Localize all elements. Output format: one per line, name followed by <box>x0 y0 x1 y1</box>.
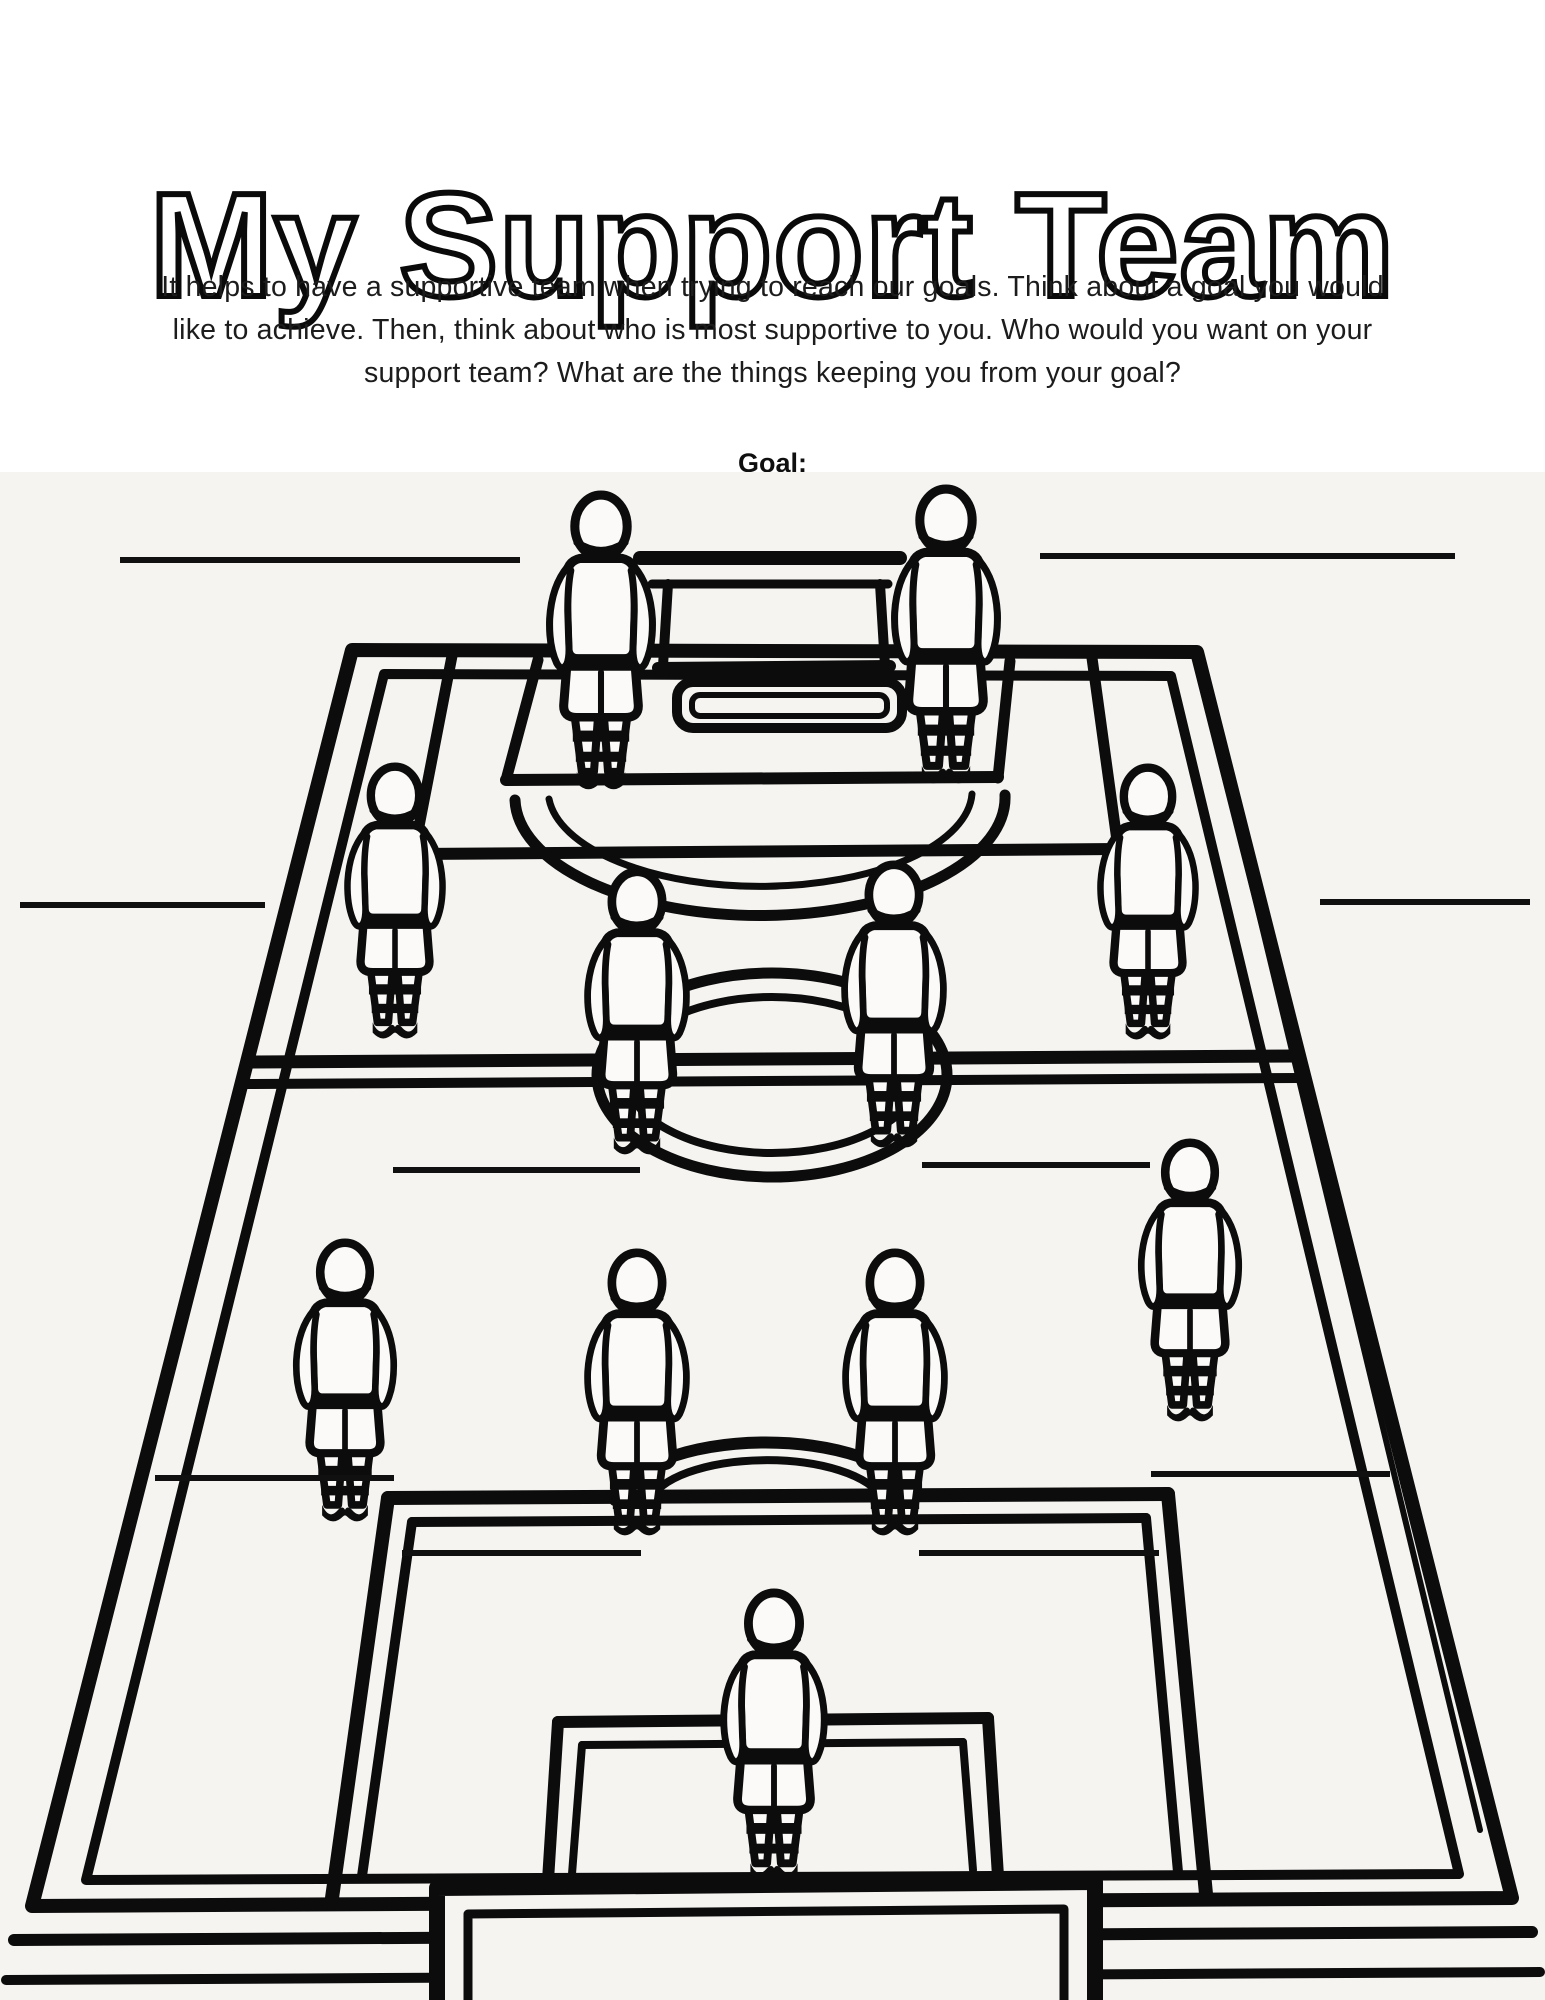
field-illustration <box>0 0 1545 2000</box>
field-illustration-wrap <box>0 0 1545 2000</box>
bottom-goal <box>437 1882 1095 2000</box>
